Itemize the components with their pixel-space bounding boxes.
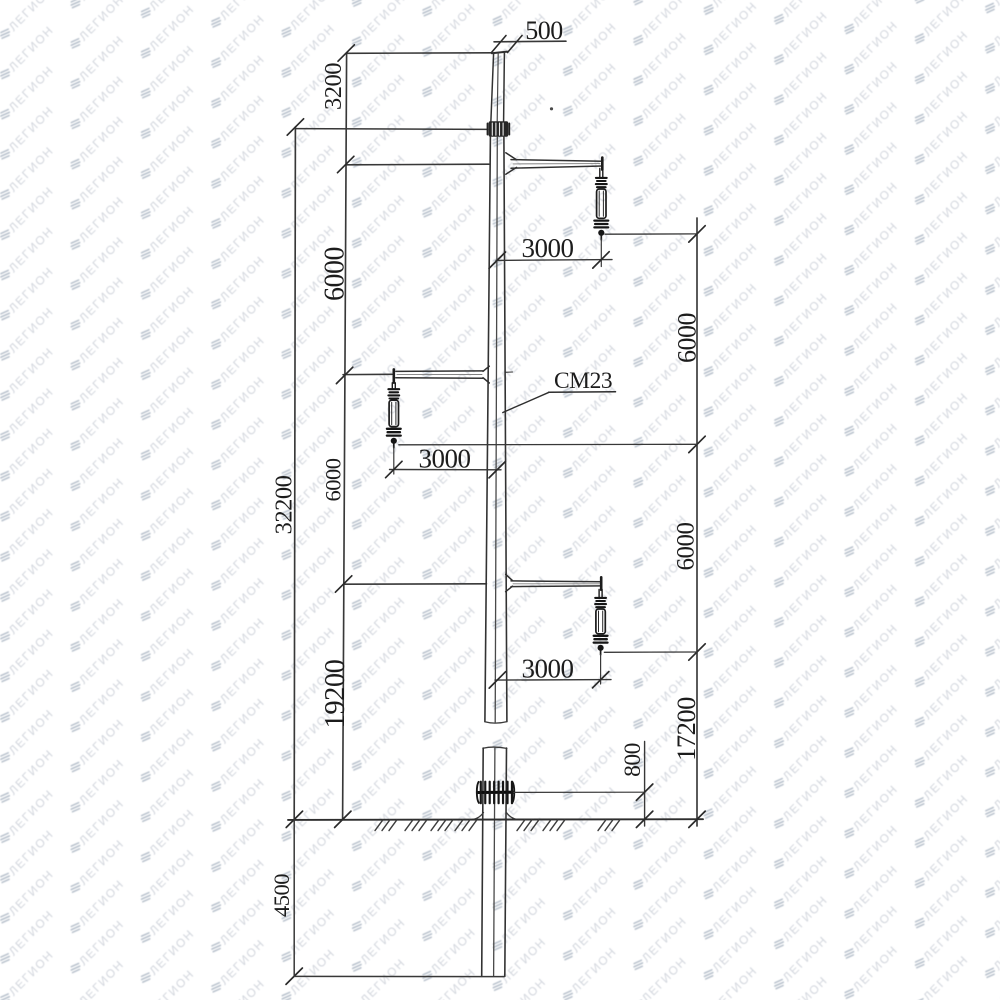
svg-text:32200: 32200 <box>271 475 298 534</box>
svg-text:3000: 3000 <box>419 443 471 473</box>
svg-text:3000: 3000 <box>522 233 574 263</box>
svg-text:6000: 6000 <box>320 247 351 301</box>
svg-text:6000: 6000 <box>673 523 700 571</box>
svg-text:3000: 3000 <box>522 654 574 684</box>
svg-text:6000: 6000 <box>673 313 702 364</box>
svg-text:3200: 3200 <box>320 63 347 110</box>
svg-text:4500: 4500 <box>269 874 294 917</box>
svg-text:19200: 19200 <box>320 659 351 728</box>
svg-text:6000: 6000 <box>321 458 346 501</box>
svg-text:СМ23: СМ23 <box>554 368 612 394</box>
svg-text:500: 500 <box>525 16 563 45</box>
svg-text:800: 800 <box>620 743 646 777</box>
svg-text:17200: 17200 <box>671 697 701 761</box>
